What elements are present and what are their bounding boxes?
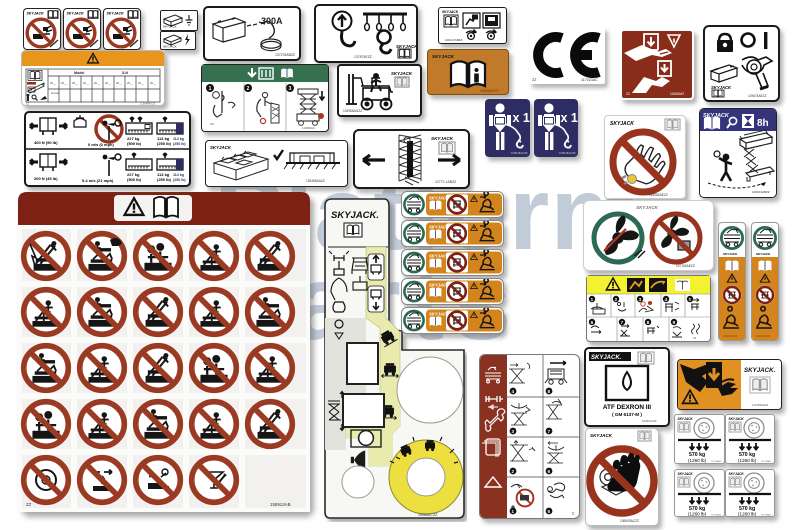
- svg-text:(1260 lb): (1260 lb): [688, 512, 707, 517]
- svg-text:117023AC: 117023AC: [581, 78, 598, 82]
- svg-text:8: 8: [548, 389, 551, 394]
- svg-text:SKYJACK: SKYJACK: [729, 472, 745, 476]
- svg-text:9.4 m/s (21 mph): 9.4 m/s (21 mph): [82, 178, 114, 183]
- svg-text:Model: Model: [74, 71, 84, 75]
- svg-text:ZZ: ZZ: [532, 78, 537, 82]
- svg-text:ZZ: ZZ: [571, 511, 575, 515]
- svg-text:114 kg: 114 kg: [173, 137, 184, 141]
- svg-text:3: 3: [289, 86, 292, 92]
- svg-text:annual: annual: [51, 91, 59, 95]
- svg-text:SKYJACK.: SKYJACK.: [744, 367, 776, 374]
- svg-text:SKYJACK: SKYJACK: [432, 54, 455, 59]
- svg-text:SKYJACK.: SKYJACK.: [331, 210, 379, 221]
- svg-text:20__: 20__: [94, 81, 101, 85]
- svg-text:20__: 20__: [72, 81, 79, 85]
- svg-text:119600AT: 119600AT: [670, 92, 684, 96]
- svg-text:152961AZZ: 152961AZZ: [642, 419, 657, 423]
- svg-text:(250 lb): (250 lb): [157, 141, 172, 146]
- svg-text:7: 7: [621, 320, 624, 325]
- svg-text:SKYJACK: SKYJACK: [756, 252, 771, 256]
- svg-text:0 m/s (0 mph): 0 m/s (0 mph): [88, 142, 114, 147]
- svg-text:(500 lb): (500 lb): [127, 141, 142, 146]
- svg-text:(250 lb): (250 lb): [173, 142, 186, 146]
- svg-text:106618ACZZ: 106618ACZZ: [511, 151, 528, 155]
- svg-text:15713ABZ: 15713ABZ: [711, 514, 722, 517]
- svg-text:SKYJACK: SKYJACK: [163, 45, 177, 49]
- svg-text:200 N (45 lb): 200 N (45 lb): [34, 176, 58, 181]
- svg-text:SKYJACK: SKYJACK: [391, 71, 413, 76]
- svg-text:2: 2: [247, 86, 250, 92]
- svg-text:106117ABZZ: 106117ABZZ: [445, 38, 463, 42]
- svg-text:(250 lb): (250 lb): [157, 177, 172, 182]
- svg-text:SKYJACK.: SKYJACK.: [591, 355, 622, 361]
- svg-text:S.N: S.N: [122, 71, 128, 75]
- svg-text:SKYJACK: SKYJACK: [729, 417, 745, 421]
- svg-text:106099ACZZ: 106099ACZZ: [756, 335, 771, 338]
- svg-text:SKYJACK: SKYJACK: [431, 136, 454, 141]
- svg-text:(1260 lb): (1260 lb): [738, 458, 757, 463]
- svg-text:4: 4: [512, 389, 515, 394]
- svg-text:137278ABZZ: 137278ABZZ: [275, 53, 295, 57]
- svg-text:20__: 20__: [138, 81, 145, 85]
- svg-text:1: 1: [209, 86, 212, 92]
- svg-text:106099ACZZ: 106099ACZZ: [723, 335, 738, 338]
- svg-text:ZZ: ZZ: [693, 336, 697, 340]
- svg-text:( GM 6137-M ): ( GM 6137-M ): [612, 412, 642, 417]
- svg-text:ZZ: ZZ: [626, 92, 630, 96]
- svg-text:6: 6: [548, 469, 551, 474]
- svg-text:SKYJACK: SKYJACK: [723, 252, 738, 256]
- svg-text:(500 lb): (500 lb): [127, 177, 142, 182]
- svg-text:20__: 20__: [150, 81, 157, 85]
- svg-text:110846AA: 110846AA: [302, 126, 315, 130]
- svg-text:SKYJACK: SKYJACK: [27, 12, 45, 16]
- svg-text:20__: 20__: [127, 81, 134, 85]
- svg-text:107760AEZZ: 107760AEZZ: [676, 264, 695, 268]
- svg-text:SKYJACK: SKYJACK: [678, 417, 694, 421]
- svg-text:1: 1: [512, 509, 515, 514]
- svg-text:117089AEZZ: 117089AEZZ: [752, 403, 769, 407]
- svg-text:SKYJACK: SKYJACK: [442, 10, 459, 14]
- svg-text:119674AEZZ: 119674AEZZ: [748, 94, 767, 98]
- svg-text:15686ACZZ: 15686ACZZ: [418, 513, 438, 517]
- svg-text:20__: 20__: [50, 81, 57, 85]
- svg-text:5: 5: [548, 509, 551, 514]
- svg-text:400 N (90 lb): 400 N (90 lb): [34, 140, 58, 145]
- svg-text:20__: 20__: [116, 81, 123, 85]
- svg-text:ZZ: ZZ: [26, 502, 32, 507]
- svg-text:20__: 20__: [83, 81, 90, 85]
- svg-text:6: 6: [591, 320, 594, 325]
- svg-text:8: 8: [647, 320, 650, 325]
- svg-text:106066AFZZ: 106066AFZZ: [480, 89, 499, 93]
- svg-text:SKYJACK: SKYJACK: [678, 472, 694, 476]
- svg-text:137874EZZ: 137874EZZ: [354, 55, 372, 59]
- svg-text:(1260 lb): (1260 lb): [738, 512, 757, 517]
- svg-text:136693ACZZ: 136693ACZZ: [620, 519, 639, 523]
- svg-text:113648AGZZ: 113648AGZZ: [140, 102, 156, 106]
- svg-text:(1260 lb): (1260 lb): [688, 458, 707, 463]
- svg-text:ZZ: ZZ: [26, 102, 30, 106]
- svg-text:SKYJACK: SKYJACK: [107, 12, 125, 16]
- svg-text:ZZ: ZZ: [210, 122, 214, 126]
- svg-text:15713ABZ: 15713ABZ: [761, 514, 772, 517]
- svg-text:x 1: x 1: [561, 111, 578, 125]
- svg-text:20__: 20__: [61, 81, 68, 85]
- svg-text:15713ABZ: 15713ABZ: [711, 460, 722, 463]
- svg-text:8h: 8h: [757, 118, 769, 129]
- svg-text:SKYJACK: SKYJACK: [590, 433, 613, 438]
- svg-text:SKYJACK: SKYJACK: [636, 205, 659, 210]
- svg-text:15713ABZ: 15713ABZ: [761, 460, 772, 463]
- svg-text:9: 9: [673, 320, 676, 325]
- svg-text:(250 lb): (250 lb): [173, 178, 186, 182]
- svg-text:2: 2: [512, 469, 515, 474]
- svg-text:158913AB: 158913AB: [270, 502, 291, 507]
- svg-text:7: 7: [548, 429, 551, 434]
- svg-text:SKYJACK: SKYJACK: [610, 121, 634, 127]
- svg-text:153455AAZZ: 153455AAZZ: [306, 179, 325, 183]
- svg-text:2: 2: [615, 297, 618, 302]
- svg-text:114 kg: 114 kg: [173, 173, 184, 177]
- svg-text:SKYJACK: SKYJACK: [396, 44, 416, 49]
- svg-text:SKYJACK: SKYJACK: [711, 85, 732, 90]
- svg-text:SKYJACK: SKYJACK: [67, 12, 85, 16]
- svg-text:3: 3: [512, 429, 515, 434]
- svg-text:1: 1: [591, 297, 594, 302]
- svg-text:SKYJACK: SKYJACK: [163, 25, 177, 29]
- svg-text:124082AEZZ: 124082AEZZ: [649, 193, 668, 197]
- svg-text:SKYJACK: SKYJACK: [210, 145, 232, 150]
- svg-text:106618ACZZ: 106618ACZZ: [559, 151, 576, 155]
- svg-text:102066AGZZ: 102066AGZZ: [343, 109, 362, 113]
- svg-text:3: 3: [639, 297, 642, 302]
- svg-text:106913ABZZ: 106913ABZZ: [752, 190, 770, 194]
- svg-text:ATF DEXRON III: ATF DEXRON III: [603, 404, 651, 411]
- svg-text:12771-1ABZZ: 12771-1ABZZ: [435, 180, 456, 184]
- svg-text:4: 4: [665, 297, 668, 302]
- svg-text:x 1: x 1: [513, 111, 530, 125]
- svg-text:20__: 20__: [105, 81, 112, 85]
- svg-text:5: 5: [689, 297, 692, 302]
